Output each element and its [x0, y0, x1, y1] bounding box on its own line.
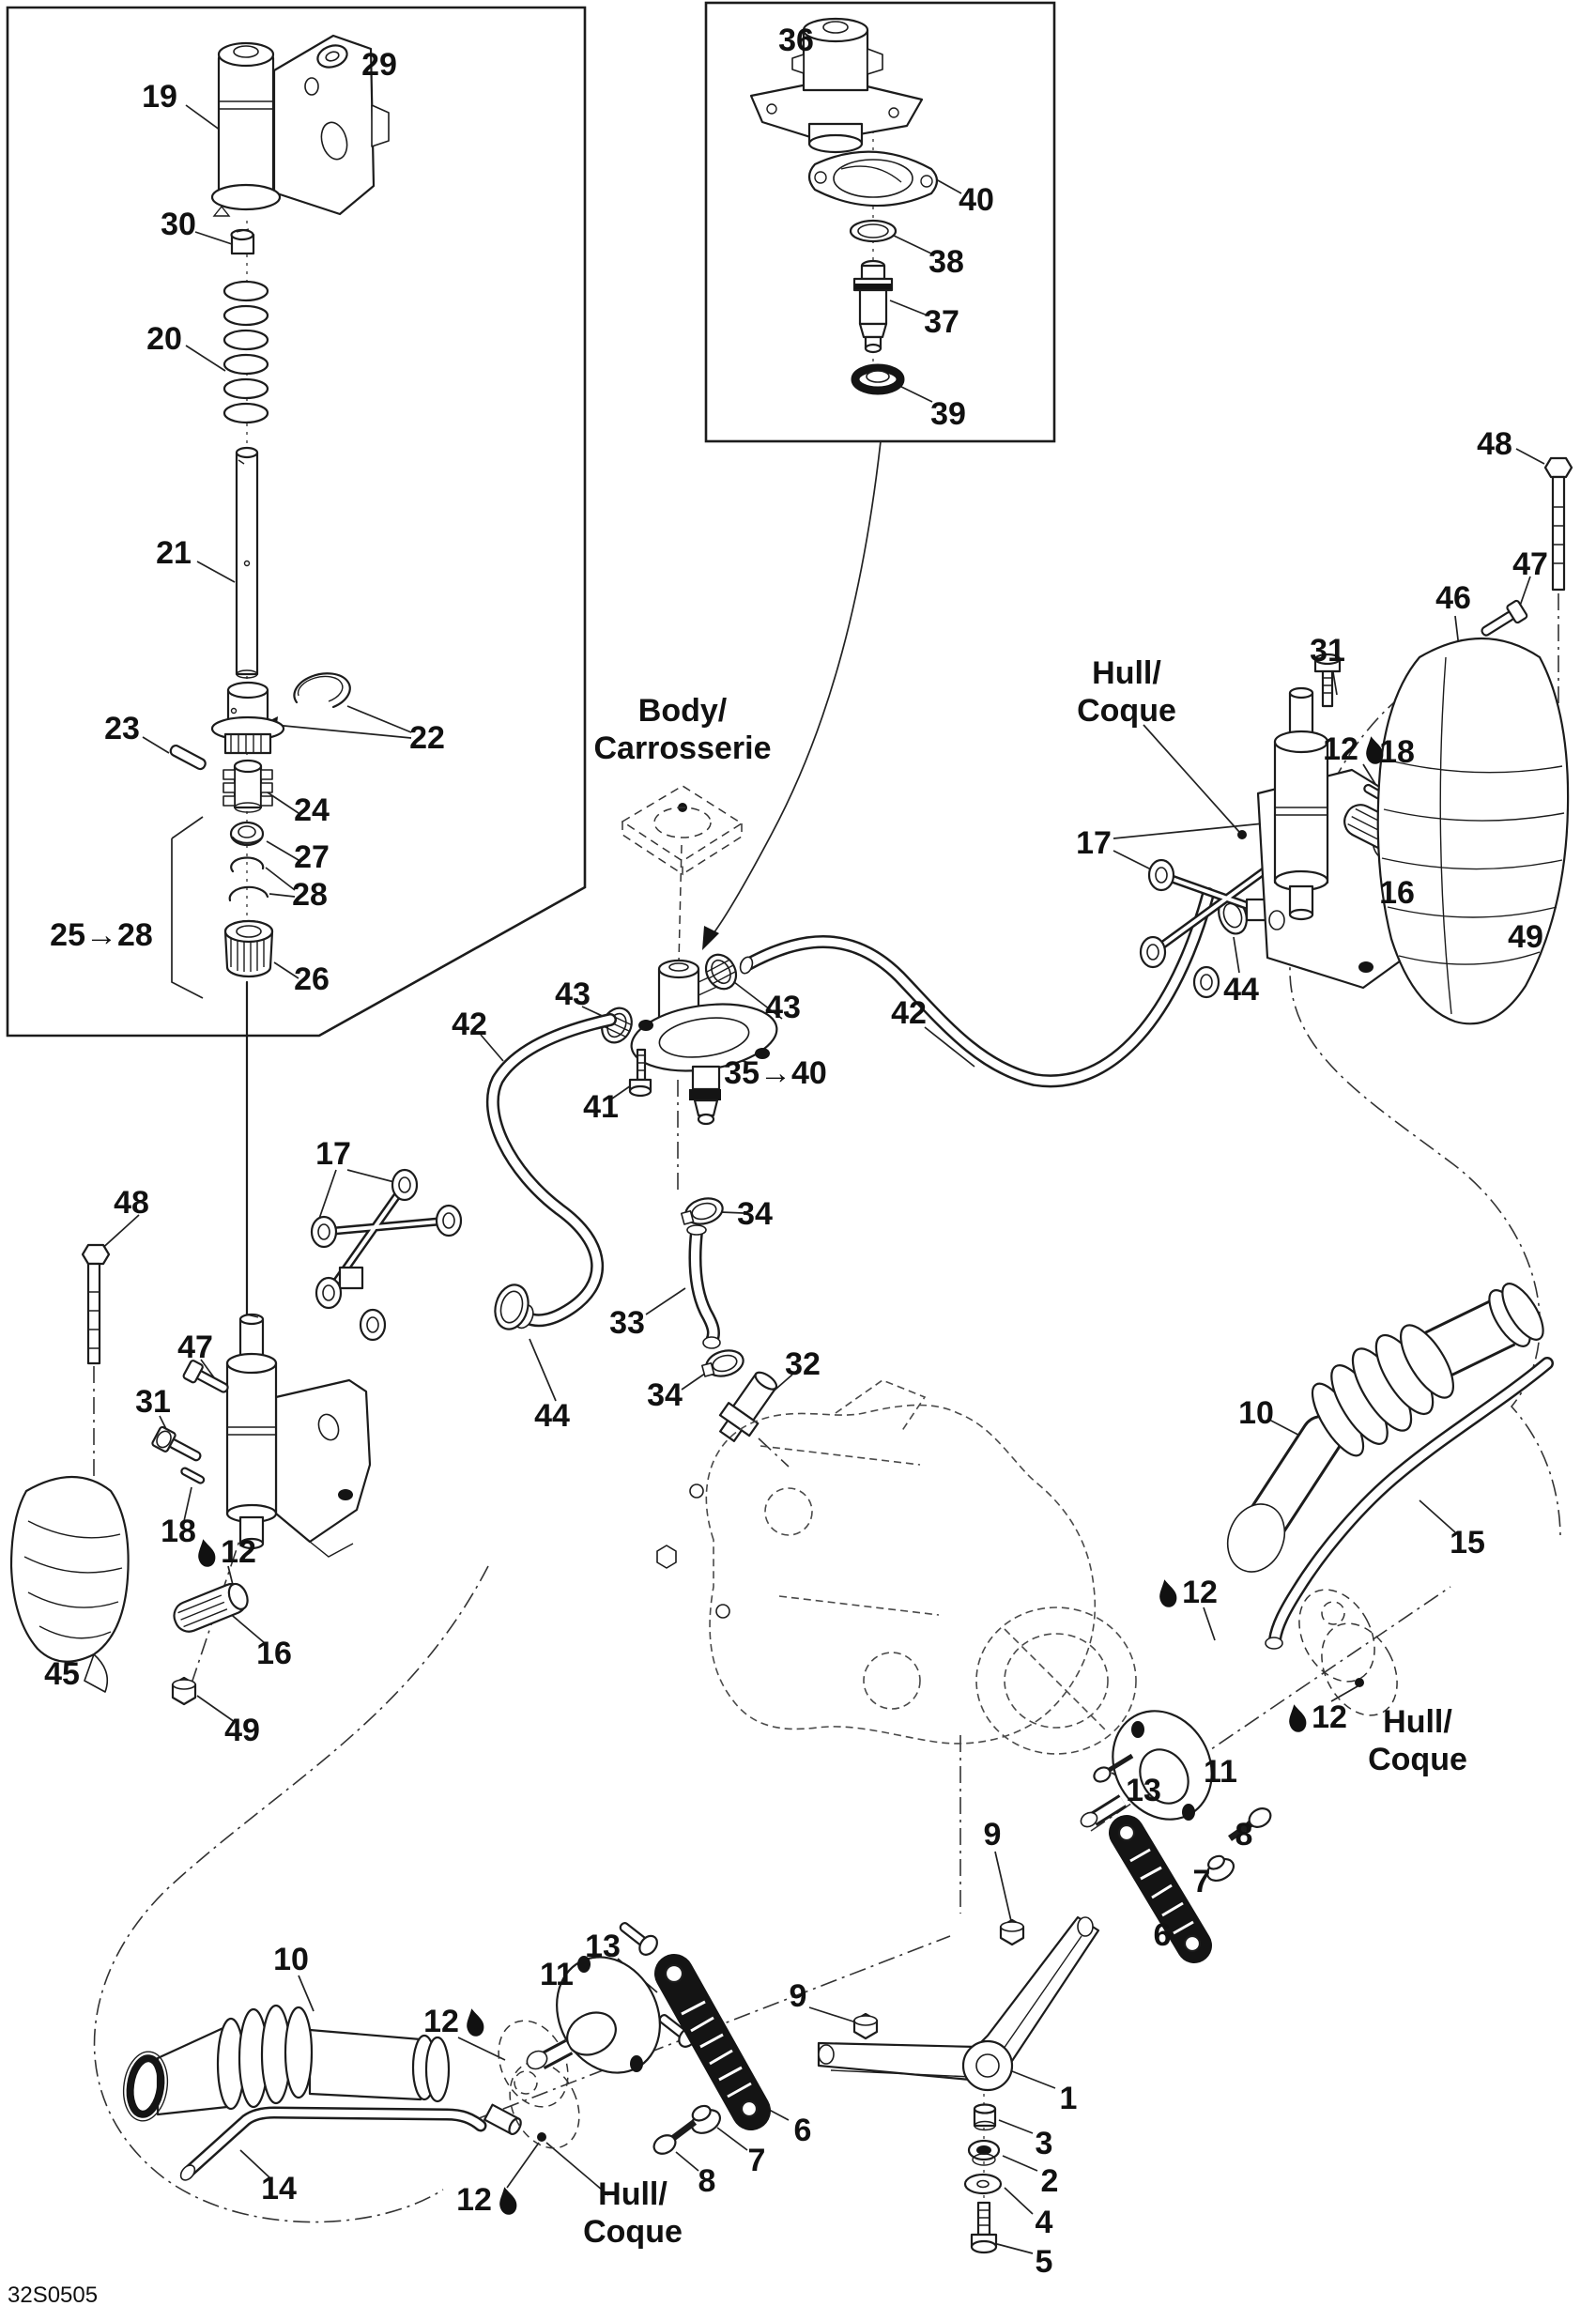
seal-39 — [855, 368, 900, 391]
part-label-43: 43 — [555, 976, 591, 1012]
bolt-48-right — [1545, 458, 1572, 590]
leader-lines — [64, 45, 1544, 2253]
oil-droplet-icon — [463, 2006, 485, 2037]
construction-lines — [94, 105, 1560, 2233]
bushing-3 — [974, 2105, 995, 2130]
valve-piston-36 — [751, 19, 922, 152]
part-label-34: 34 — [737, 1196, 773, 1232]
part-label-18: 18 — [161, 1514, 196, 1549]
part-label-47: 47 — [177, 1330, 213, 1365]
part-label-43: 43 — [765, 990, 801, 1025]
part-label-17: 17 — [1076, 825, 1112, 861]
part-label-39: 39 — [930, 396, 966, 432]
washer-4 — [965, 2175, 1001, 2193]
hose-clamp-43-right — [700, 949, 742, 994]
linkage-17-left — [312, 1170, 461, 1340]
oil-droplet-icon — [496, 2185, 518, 2216]
part-label-31: 31 — [1310, 633, 1345, 669]
part-label-16: 16 — [256, 1636, 292, 1671]
part-label-33: 33 — [609, 1305, 645, 1341]
hose-14 — [178, 2105, 524, 2183]
part-label-9: 9 — [984, 1817, 1002, 1852]
hose-42-right — [738, 894, 1208, 1081]
bolt-8-left — [651, 2122, 695, 2158]
oil-droplet-icon — [1285, 1702, 1308, 1733]
part-label-12: 12 — [1182, 1575, 1218, 1610]
circlip-22 — [294, 673, 349, 707]
washer-7-left — [685, 2100, 724, 2138]
body-plate — [622, 786, 742, 874]
bolt-13-left-a — [615, 1916, 660, 1958]
part-label-22: 22 — [409, 720, 445, 756]
hull-coque-bottom-label: Hull/Coque — [583, 2176, 683, 2250]
valve-assembly-35-40 — [627, 961, 781, 1124]
part-label-8: 8 — [698, 2163, 716, 2199]
part-label-13: 13 — [585, 1929, 621, 1964]
valve-stem-37 — [854, 261, 892, 352]
bolt-5 — [972, 2203, 996, 2252]
part-label-48: 48 — [114, 1185, 149, 1221]
part-label-10: 10 — [1238, 1395, 1274, 1431]
part-label-42: 42 — [891, 995, 927, 1031]
bolt-48-left — [83, 1245, 109, 1363]
part-label-9: 9 — [790, 1978, 807, 2014]
nut-49-left — [173, 1678, 195, 1704]
bolt-31-left — [151, 1426, 204, 1468]
part-label-29: 29 — [361, 47, 397, 83]
hose-33 — [687, 1225, 720, 1348]
part-label-21: 21 — [156, 535, 192, 571]
part-label-47: 47 — [1512, 546, 1548, 582]
part-label-15: 15 — [1450, 1525, 1485, 1560]
bracket-25-28 — [172, 817, 203, 998]
cap-30 — [232, 229, 254, 254]
part-label-24: 24 — [294, 792, 330, 828]
part-label-34: 34 — [647, 1377, 683, 1413]
splined-shaft-16-left — [170, 1579, 252, 1636]
part-label-40: 40 — [959, 182, 994, 218]
part-label-30: 30 — [161, 207, 196, 242]
part-label-42: 42 — [452, 1007, 487, 1042]
part-label-26: 26 — [294, 961, 330, 997]
part-label-3: 3 — [1036, 2126, 1053, 2161]
part-label-12: 12 — [1323, 731, 1358, 767]
part-label-11: 11 — [1204, 1754, 1237, 1790]
part-label-37: 37 — [924, 304, 959, 340]
shaft-tube-21 — [237, 448, 257, 678]
piston-guide-21-lower — [212, 683, 284, 753]
part-label-46: 46 — [1435, 580, 1471, 616]
part-label-7: 7 — [1193, 1864, 1211, 1899]
part-label-10: 10 — [273, 1942, 309, 1977]
part-label-23: 23 — [104, 711, 140, 746]
gasket-40 — [809, 152, 937, 206]
part-label-27: 27 — [294, 839, 330, 875]
nut-9-right — [1001, 1920, 1023, 1945]
part-label-2: 2 — [1041, 2163, 1059, 2199]
cover-46 — [1378, 638, 1568, 1023]
part-label-44: 44 — [1223, 972, 1259, 1007]
parts-diagram-page: 1929302021232224272825→28263640383739484… — [0, 0, 1596, 2306]
o-rings-28 — [230, 858, 268, 900]
hull-coque-upper-right-label: Hull/Coque — [1077, 655, 1176, 729]
part-label-8: 8 — [1235, 1817, 1253, 1852]
hose-42-left — [493, 1020, 610, 1331]
bellows-10-left — [119, 2006, 449, 2124]
part-label-14: 14 — [261, 2171, 297, 2206]
oil-droplet-icon — [194, 1537, 217, 1568]
part-code: 32S0505 — [8, 2283, 98, 2306]
part-label-35-40: 35→40 — [724, 1055, 827, 1091]
part-label-16: 16 — [1379, 875, 1415, 911]
part-label-19: 19 — [142, 79, 177, 115]
exploded-parts-diagram: 1929302021232224272825→28263640383739484… — [0, 0, 1596, 2306]
part-label-18: 18 — [1379, 734, 1415, 770]
hull-coque-lower-right-label: Hull/Coque — [1368, 1704, 1467, 1777]
part-label-13: 13 — [1126, 1773, 1161, 1808]
part-label-45: 45 — [44, 1656, 80, 1692]
nut-26 — [225, 921, 272, 976]
part-label-38: 38 — [928, 244, 964, 280]
part-label-48: 48 — [1477, 426, 1512, 462]
pin-23 — [169, 744, 207, 770]
spring-20 — [224, 282, 268, 423]
pin-18-left — [180, 1467, 205, 1484]
part-label-5: 5 — [1036, 2244, 1053, 2280]
part-label-31: 31 — [135, 1384, 171, 1420]
oil-droplet-icon — [1156, 1577, 1178, 1608]
steering-support-left — [227, 1314, 370, 1557]
bolt-47-right — [1478, 600, 1528, 641]
fitting-32 — [713, 1366, 784, 1447]
part-label-6: 6 — [794, 2113, 812, 2148]
part-label-20: 20 — [146, 321, 182, 357]
part-label-49: 49 — [1508, 919, 1543, 955]
part-label-11: 11 — [540, 1957, 574, 1992]
part-label-6: 6 — [1154, 1917, 1172, 1953]
o-ring-38 — [851, 221, 896, 241]
clamp-34-lower — [699, 1346, 745, 1381]
part-label-44: 44 — [534, 1398, 570, 1434]
clamp-34-upper — [679, 1194, 725, 1229]
part-label-17: 17 — [315, 1136, 351, 1172]
part-label-49: 49 — [224, 1713, 260, 1748]
body-carrosserie-label: Body/Carrosserie — [593, 693, 771, 766]
bearing-27 — [231, 822, 263, 845]
part-label-7: 7 — [748, 2143, 766, 2178]
part-label-12: 12 — [1312, 1699, 1347, 1735]
part-label-32: 32 — [785, 1346, 821, 1382]
part-label-36: 36 — [778, 23, 814, 58]
part-label-41: 41 — [583, 1089, 619, 1125]
part-label-12: 12 — [456, 2182, 492, 2218]
part-label-12: 12 — [423, 2004, 459, 2039]
part-label-4: 4 — [1036, 2205, 1053, 2240]
part-label-12: 12 — [221, 1534, 256, 1570]
bolt-47-left — [183, 1360, 232, 1398]
part-label-25-28: 25→28 — [50, 917, 153, 953]
impeller-24 — [223, 761, 272, 812]
nut-9-left — [854, 2014, 877, 2038]
part-label-28: 28 — [292, 877, 328, 913]
part-label-1: 1 — [1060, 2081, 1078, 2116]
bracket-1 — [819, 1917, 1098, 2090]
labels-layer: 1929302021232224272825→28263640383739484… — [44, 23, 1548, 2280]
